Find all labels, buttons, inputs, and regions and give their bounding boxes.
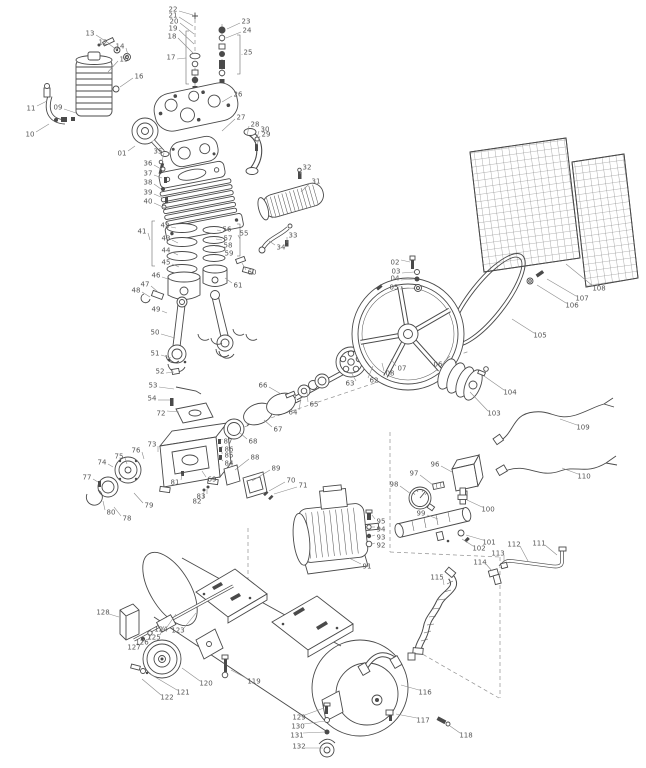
- part-label-81: 81: [171, 479, 180, 487]
- leader-line-01: [128, 146, 135, 151]
- part-label-70: 70: [287, 477, 296, 485]
- axle-bolt: [131, 664, 141, 670]
- part-label-82: 82: [193, 498, 202, 506]
- part-label-68: 68: [249, 438, 258, 446]
- part-label-96: 96: [431, 461, 440, 469]
- part-label-53: 53: [149, 382, 158, 390]
- part-label-110: 110: [577, 473, 590, 481]
- leader-line-36: [154, 165, 161, 169]
- leader-line-95: [372, 515, 375, 519]
- mounting-platform-1: [196, 569, 267, 623]
- part-label-26: 26: [234, 91, 243, 99]
- crankshaft: [224, 372, 344, 439]
- part-label-72: 72: [157, 410, 166, 418]
- part-label-87: 87: [224, 438, 233, 446]
- part-label-61: 61: [234, 282, 243, 290]
- part-label-80: 80: [107, 509, 116, 517]
- leader-line-119: [231, 670, 248, 679]
- leader-line-23: [227, 23, 240, 29]
- part-label-27: 27: [237, 114, 246, 122]
- leader-line-74: [108, 464, 113, 467]
- outlet-pipe: [500, 547, 566, 569]
- part-label-130: 130: [291, 723, 304, 731]
- part-label-120: 120: [199, 680, 212, 688]
- leader-line-71: [274, 487, 297, 494]
- part-label-93: 93: [377, 534, 386, 542]
- leader-line-49: [162, 311, 167, 313]
- leader-line-66: [269, 387, 281, 394]
- part-label-77: 77: [83, 474, 92, 482]
- leader-line-50: [161, 334, 175, 338]
- leader-line-20: [180, 23, 194, 34]
- oil-parts: [170, 368, 213, 423]
- guard-screw: [536, 270, 545, 277]
- leader-line-79: [134, 493, 143, 503]
- leader-line-122: [142, 679, 161, 695]
- piston-2: [203, 265, 227, 287]
- part-label-63: 63: [346, 380, 355, 388]
- part-label-25: 25: [244, 49, 253, 57]
- leader-line-09: [64, 109, 76, 113]
- part-label-11: 11: [27, 105, 36, 113]
- part-label-56: 56: [223, 226, 232, 234]
- leader-line-111: [545, 545, 557, 555]
- leader-line-10: [36, 124, 49, 132]
- part-label-52: 52: [156, 368, 165, 376]
- part-label-49: 49: [152, 306, 161, 314]
- leader-line-97: [420, 475, 433, 485]
- part-label-35: 35: [154, 148, 163, 156]
- part-label-103: 103: [487, 410, 500, 418]
- part-label-127: 127: [127, 644, 140, 652]
- part-label-99: 99: [417, 510, 426, 518]
- part-label-34: 34: [277, 244, 286, 252]
- part-label-31: 31: [312, 178, 321, 186]
- part-label-16: 16: [135, 73, 144, 81]
- part-label-39: 39: [144, 189, 153, 197]
- part-label-116: 116: [418, 689, 432, 697]
- leader-line-104: [484, 376, 504, 390]
- part-label-07: 07: [398, 365, 407, 373]
- piston-1: [168, 272, 200, 300]
- part-label-38: 38: [144, 179, 153, 187]
- leader-line-17: [177, 58, 186, 59]
- leader-line-100: [467, 500, 482, 507]
- part-label-119: 119: [247, 678, 260, 686]
- manifold-fitting: [458, 530, 464, 536]
- tank-plug-bolt: [437, 716, 450, 726]
- leader-line-80: [103, 501, 105, 510]
- part-label-118: 118: [459, 732, 472, 740]
- part-label-09: 09: [54, 104, 63, 112]
- part-label-60: 60: [248, 269, 257, 277]
- leader-line-16: [120, 78, 133, 87]
- part-label-88: 88: [251, 454, 260, 462]
- part-label-105: 105: [533, 332, 546, 340]
- gauge: [409, 487, 435, 511]
- part-label-18: 18: [168, 33, 177, 41]
- part-label-37: 37: [144, 170, 153, 178]
- part-label-74: 74: [98, 459, 107, 467]
- part-label-79: 79: [145, 502, 154, 510]
- part-label-122: 122: [160, 694, 173, 702]
- part-label-91: 91: [363, 563, 372, 571]
- leader-line-76: [142, 452, 144, 459]
- part-label-114: 114: [473, 559, 487, 567]
- part-label-92: 92: [377, 542, 386, 550]
- part-label-100: 100: [481, 506, 494, 514]
- connecting-rods: [166, 291, 257, 372]
- part-label-128: 128: [96, 609, 109, 617]
- part-label-95: 95: [377, 518, 386, 526]
- part-label-129: 129: [292, 714, 305, 722]
- part-label-67: 67: [274, 426, 283, 434]
- leader-line-114: [486, 564, 492, 571]
- part-label-40: 40: [144, 198, 153, 206]
- part-label-13: 13: [86, 30, 95, 38]
- leader-line-02: [401, 260, 410, 262]
- part-label-108: 108: [592, 285, 605, 293]
- part-label-62: 62: [370, 377, 379, 385]
- part-label-121: 121: [176, 689, 189, 697]
- leader-line-103: [470, 392, 488, 411]
- part-label-75: 75: [115, 453, 124, 461]
- part-label-05: 05: [390, 284, 399, 292]
- part-label-28: 28: [251, 121, 260, 129]
- part-label-64: 64: [289, 409, 298, 417]
- compressor-parts-diagram: 1312141516110910013522212019181723242526…: [0, 0, 646, 768]
- part-label-66: 66: [259, 382, 268, 390]
- part-label-98: 98: [390, 481, 399, 489]
- part-label-23: 23: [242, 18, 251, 26]
- pipe-nut: [501, 562, 508, 568]
- part-label-50: 50: [151, 329, 160, 337]
- elbow-bolt: [255, 144, 258, 151]
- part-label-48: 48: [132, 287, 141, 295]
- part-label-124: 124: [154, 626, 168, 634]
- part-label-123: 123: [171, 627, 184, 635]
- leader-line-77: [93, 479, 98, 482]
- leader-line-22: [179, 11, 193, 15]
- exploded-view-drawing: 1312141516110910013522212019181723242526…: [0, 0, 646, 768]
- leader-line-112: [520, 546, 528, 561]
- part-label-02: 02: [391, 259, 400, 267]
- part-label-01: 01: [118, 150, 127, 158]
- leader-line-109: [560, 419, 577, 425]
- part-label-32: 32: [303, 164, 312, 172]
- part-label-36: 36: [144, 160, 153, 168]
- part-label-78: 78: [123, 515, 132, 523]
- part-label-71: 71: [299, 482, 308, 490]
- part-label-106: 106: [565, 302, 579, 310]
- aftercooler: [256, 181, 326, 221]
- part-label-84: 84: [225, 460, 234, 468]
- part-label-89: 89: [272, 465, 281, 473]
- leader-line-21: [179, 17, 193, 26]
- part-label-33: 33: [289, 232, 298, 240]
- hose-nut: [408, 653, 415, 660]
- part-label-109: 109: [576, 424, 589, 432]
- part-label-76: 76: [132, 447, 141, 455]
- leader-line-131: [303, 732, 325, 733]
- part-label-47: 47: [141, 281, 150, 289]
- crankcase-covers: [224, 465, 273, 500]
- part-label-15: 15: [120, 56, 129, 64]
- part-label-125: 125: [147, 634, 160, 642]
- leader-line-41: [148, 233, 150, 240]
- part-label-24: 24: [243, 27, 252, 35]
- part-label-113: 113: [491, 550, 504, 558]
- part-label-41: 41: [138, 228, 147, 236]
- nipple-fitting: [432, 482, 444, 490]
- leader-line-107: [547, 279, 576, 296]
- part-label-104: 104: [503, 389, 517, 397]
- bearing-covers: [86, 457, 141, 505]
- leader-line-11: [37, 101, 47, 106]
- part-label-112: 112: [507, 541, 520, 549]
- part-label-73: 73: [148, 441, 157, 449]
- part-label-12: 12: [99, 39, 108, 47]
- part-label-06: 06: [434, 361, 443, 369]
- guard-washer: [527, 278, 533, 284]
- part-label-29: 29: [262, 131, 271, 139]
- part-label-46: 46: [152, 272, 161, 280]
- part-label-59: 59: [225, 250, 234, 258]
- part-label-65: 65: [310, 401, 319, 409]
- part-label-42: 42: [161, 222, 170, 230]
- part-label-04: 04: [391, 275, 400, 283]
- part-label-132: 132: [292, 743, 305, 751]
- part-label-17: 17: [167, 54, 176, 62]
- wheel-bracket: [196, 629, 223, 659]
- tank-bolt: [222, 655, 228, 678]
- part-label-55: 55: [240, 230, 249, 238]
- part-label-45: 45: [162, 259, 171, 267]
- leader-line-03: [402, 272, 414, 273]
- part-label-131: 131: [290, 732, 303, 740]
- part-label-54: 54: [148, 395, 157, 403]
- part-label-10: 10: [26, 131, 35, 139]
- part-label-94: 94: [377, 526, 386, 534]
- part-label-111: 111: [532, 540, 545, 548]
- piston-rings-1: [167, 224, 197, 274]
- elbow-fitting: [488, 569, 501, 585]
- leader-line-92: [372, 543, 375, 544]
- part-label-44: 44: [162, 247, 171, 255]
- part-label-85: 85: [225, 452, 234, 460]
- leader-line-67: [264, 420, 272, 427]
- outlet-elbow: [244, 129, 259, 175]
- part-label-58: 58: [224, 242, 233, 250]
- part-label-102: 102: [472, 545, 485, 553]
- manifold: [394, 488, 472, 543]
- leader-line-96: [441, 466, 452, 472]
- cooler-fitting: [113, 86, 119, 92]
- part-label-117: 117: [416, 717, 429, 725]
- leader-line-38: [154, 184, 161, 189]
- part-label-14: 14: [116, 43, 125, 51]
- leader-line-98: [400, 486, 411, 494]
- part-label-51: 51: [151, 350, 160, 358]
- leader-line-93: [372, 535, 375, 536]
- leader-line-120: [182, 668, 200, 681]
- leader-line-105: [512, 319, 534, 333]
- part-label-97: 97: [410, 470, 419, 478]
- wire-harness-2: [496, 456, 617, 475]
- wire-harness-1: [493, 398, 614, 445]
- leader-line-53: [159, 387, 174, 389]
- pressure-switch: [452, 455, 483, 497]
- pipe-fitting: [44, 88, 50, 97]
- air-tank: [132, 544, 408, 736]
- leader-line-70: [269, 482, 285, 491]
- part-label-19: 19: [169, 25, 178, 33]
- part-label-08: 08: [386, 370, 395, 378]
- part-label-107: 107: [575, 295, 588, 303]
- part-label-69: 69: [208, 476, 217, 484]
- part-label-43: 43: [162, 235, 171, 243]
- part-label-115: 115: [430, 574, 443, 582]
- leader-line-128: [109, 614, 119, 617]
